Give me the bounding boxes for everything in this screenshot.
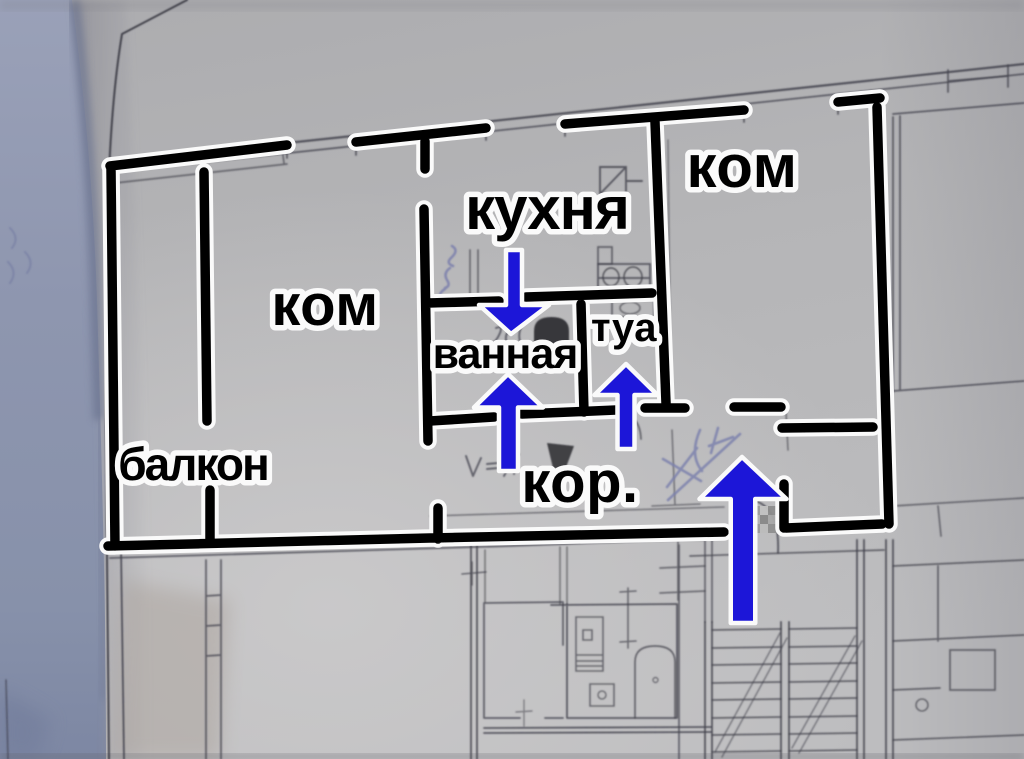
svg-text:ком: ком xyxy=(271,273,378,338)
svg-text:балкон: балкон xyxy=(118,438,268,490)
svg-text:ком: ком xyxy=(687,133,798,200)
svg-text:туа: туа xyxy=(591,306,657,350)
svg-text:ванная: ванная xyxy=(433,330,578,378)
svg-text:кор.: кор. xyxy=(521,450,638,515)
svg-text:кухня: кухня xyxy=(465,175,629,242)
